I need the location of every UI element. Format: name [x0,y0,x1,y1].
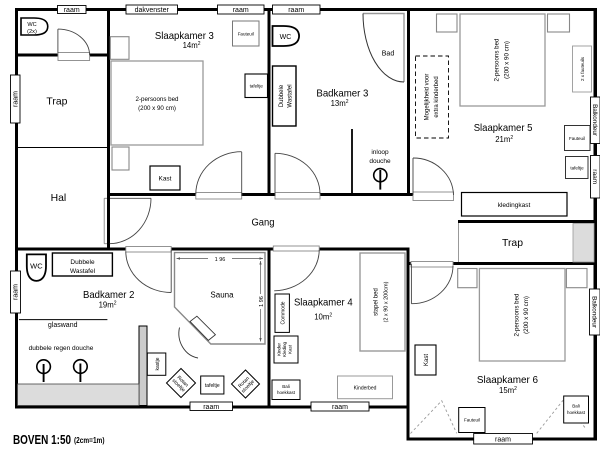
svg-text:stapel bed: stapel bed [374,288,380,316]
svg-text:hoekkast: hoekkast [567,410,586,415]
svg-text:tafeltje: tafeltje [250,84,264,89]
svg-text:Hal: Hal [51,193,67,204]
svg-text:Kleding: Kleding [282,341,287,357]
svg-text:Kinder: Kinder [277,342,282,356]
svg-text:hoekkast: hoekkast [277,390,296,395]
svg-text:Kast: Kast [158,176,171,183]
svg-text:inloop: inloop [371,149,389,156]
svg-text:raam: raam [332,404,348,411]
svg-text:raam: raam [233,7,249,14]
svg-text:Bali: Bali [572,404,580,409]
svg-text:raam: raam [288,7,304,14]
svg-text:glaswand: glaswand [48,322,78,329]
svg-text:2-persoons bed: 2-persoons bed [514,293,521,337]
svg-text:2-persoons bed: 2-persoons bed [494,38,501,82]
svg-text:1 96: 1 96 [259,296,265,307]
svg-text:raam: raam [495,437,511,444]
svg-text:WC: WC [30,262,43,271]
svg-text:WC: WC [27,22,36,28]
svg-text:1 96: 1 96 [215,257,226,263]
svg-text:Kast: Kast [424,354,430,366]
svg-text:Fauteuil: Fauteuil [238,32,254,37]
svg-text:Fauteuil: Fauteuil [464,418,480,423]
svg-text:Bali: Bali [282,384,290,389]
svg-text:Slaapkamer 6: Slaapkamer 6 [477,375,538,386]
svg-text:WC: WC [280,34,292,41]
svg-text:raam: raam [12,91,19,107]
svg-text:dubbele regen douche: dubbele regen douche [29,345,94,352]
svg-text:Balkondeur: Balkondeur [591,296,598,328]
svg-text:BOVEN 1:50: BOVEN 1:50 [13,433,71,447]
svg-text:(200 x 90 cm): (200 x 90 cm) [504,41,511,79]
svg-text:Trap: Trap [46,97,67,108]
svg-text:tafeltje: tafeltje [570,166,584,171]
svg-text:raam: raam [203,404,219,411]
svg-text:2-persoons bed: 2-persoons bed [136,96,180,103]
svg-text:dakvenster: dakvenster [135,7,170,14]
svg-text:(2 x 90 x 200cm): (2 x 90 x 200cm) [384,281,390,322]
svg-text:Kinderbed: Kinderbed [354,386,377,392]
svg-text:Dubbele: Dubbele [279,84,285,107]
svg-text:Commode: Commode [280,301,286,324]
svg-text:Badkamer 3: Badkamer 3 [316,89,368,100]
svg-text:(2x): (2x) [27,29,37,35]
svg-text:(200 x 90 cm): (200 x 90 cm) [138,105,176,112]
svg-text:(200 x 90 cm): (200 x 90 cm) [523,296,530,334]
svg-text:raam: raam [13,284,20,300]
svg-text:Badkamer 2: Badkamer 2 [83,290,135,301]
svg-text:Gang: Gang [252,218,275,229]
svg-text:Slaapkamer 4: Slaapkamer 4 [294,297,353,308]
svg-text:raam: raam [64,7,80,14]
svg-text:Wastafel: Wastafel [70,268,96,275]
svg-text:raam: raam [591,169,598,184]
svg-text:2 x fauteuils: 2 x fauteuils [580,56,585,81]
svg-text:Bad: Bad [382,51,395,58]
svg-text:Slaapkamer 5: Slaapkamer 5 [474,123,533,134]
svg-text:kastje: kastje [155,357,161,370]
svg-text:Balkondeur: Balkondeur [591,104,598,136]
svg-text:Fauteuil: Fauteuil [569,136,585,141]
svg-text:(2cm=1m): (2cm=1m) [74,436,105,445]
svg-text:douche: douche [369,158,391,165]
svg-text:tafeltje: tafeltje [205,383,220,389]
svg-text:extra kinderbed: extra kinderbed [434,76,440,117]
svg-text:Sauna: Sauna [210,291,234,300]
svg-text:Mogelijkheid voor: Mogelijkheid voor [425,74,431,121]
svg-text:Kast: Kast [288,344,293,354]
svg-text:Trap: Trap [502,238,523,249]
svg-text:Wastafel: Wastafel [287,84,293,107]
svg-text:Dubbele: Dubbele [70,259,95,266]
svg-text:kledingkast: kledingkast [498,202,531,209]
